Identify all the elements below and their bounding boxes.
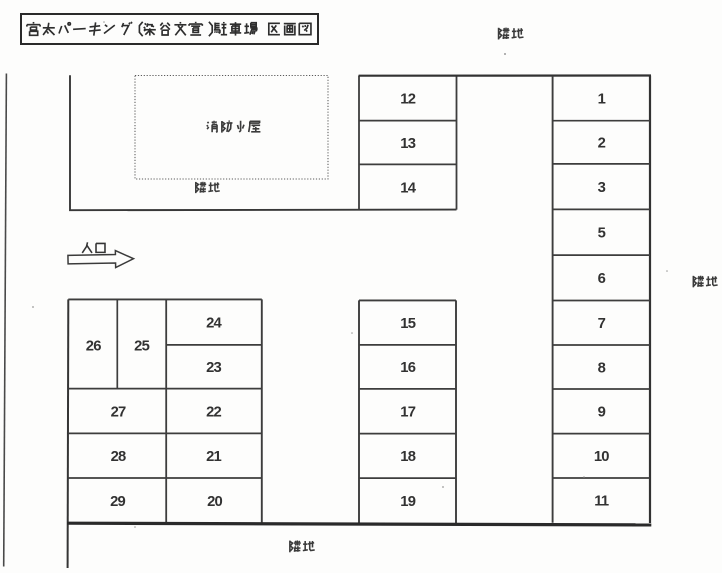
svg-text:20: 20 xyxy=(207,494,222,510)
svg-text:25: 25 xyxy=(134,338,149,354)
svg-text:18: 18 xyxy=(400,449,415,465)
svg-text:13: 13 xyxy=(400,136,415,152)
svg-text:12: 12 xyxy=(400,91,415,107)
svg-text:7: 7 xyxy=(598,316,606,332)
svg-text:11: 11 xyxy=(594,493,609,509)
svg-text:8: 8 xyxy=(598,360,606,376)
svg-text:23: 23 xyxy=(206,360,221,376)
svg-text:2: 2 xyxy=(598,136,606,152)
svg-text:29: 29 xyxy=(110,494,125,510)
svg-text:10: 10 xyxy=(594,449,609,465)
svg-text:17: 17 xyxy=(400,405,415,421)
svg-text:24: 24 xyxy=(206,315,222,331)
svg-text:5: 5 xyxy=(598,226,606,242)
svg-text:3: 3 xyxy=(598,180,606,196)
svg-text:27: 27 xyxy=(111,405,126,421)
svg-text:16: 16 xyxy=(400,360,415,376)
svg-text:26: 26 xyxy=(86,338,101,354)
svg-text:21: 21 xyxy=(206,449,221,465)
svg-text:1: 1 xyxy=(598,92,606,108)
svg-text:6: 6 xyxy=(598,271,606,287)
svg-text:22: 22 xyxy=(206,405,221,421)
svg-text:14: 14 xyxy=(400,180,416,196)
svg-text:15: 15 xyxy=(400,316,415,332)
svg-text:19: 19 xyxy=(400,494,415,510)
svg-text:28: 28 xyxy=(111,449,126,465)
svg-text:9: 9 xyxy=(598,405,606,421)
